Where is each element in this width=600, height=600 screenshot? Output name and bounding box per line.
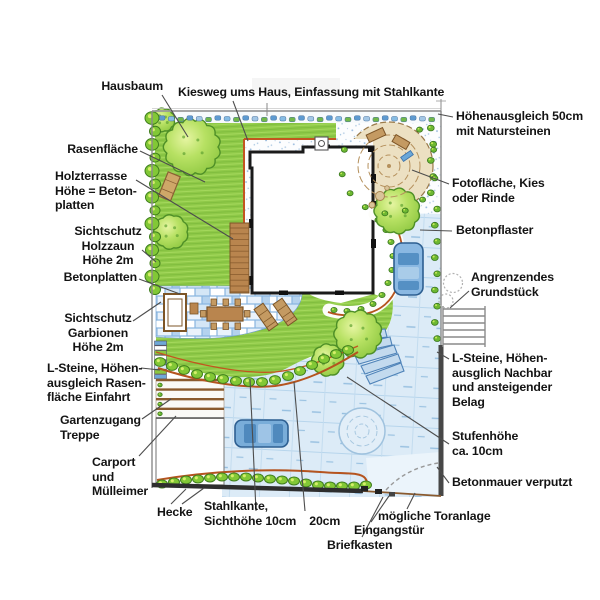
mailbox (361, 486, 368, 492)
turning-circle (339, 408, 385, 454)
gravel-stone (317, 117, 323, 122)
house-door-mark (335, 291, 344, 296)
gravel-stone (410, 116, 416, 121)
hedge-bush (270, 376, 281, 385)
leader-line-hecke (171, 489, 186, 504)
hedge-bush (205, 474, 216, 482)
gravel-stone (336, 117, 342, 122)
hedge-bush (295, 367, 306, 376)
gravel-stone (252, 117, 258, 122)
gravel-stone (308, 117, 314, 122)
hedge-bush (277, 476, 288, 484)
gravel-stone (243, 116, 249, 121)
entrance-door-mark (375, 489, 382, 494)
gravel-stone (401, 117, 407, 122)
hedge-bush (181, 476, 192, 484)
stone (376, 192, 385, 201)
hedge-bush (150, 179, 161, 189)
chair (201, 311, 207, 318)
gravel-stone (299, 116, 305, 121)
hedge-bush (150, 126, 161, 136)
gravel-stone (382, 116, 388, 121)
hedge-bush (217, 473, 228, 481)
hedge-bush (179, 366, 190, 375)
hedge-bush (283, 372, 294, 381)
chair (245, 311, 251, 318)
hedge-bush (205, 373, 216, 382)
gravel-stone (206, 117, 212, 122)
stone (369, 202, 375, 208)
garden-plan-drawing (0, 0, 600, 600)
tree-icon (154, 215, 188, 250)
chair (235, 323, 241, 330)
gravel-stone (233, 117, 239, 122)
garden-step (156, 409, 224, 419)
garden-step (156, 399, 224, 409)
gate-mark (389, 492, 395, 497)
gravel-stone (159, 116, 165, 121)
chair (223, 323, 229, 330)
gravel-stone (196, 117, 202, 122)
leader-line-briefkasten (362, 497, 383, 537)
sketched-tree (444, 274, 463, 293)
gravel-stone (280, 117, 286, 122)
gravel-stone (392, 117, 398, 122)
gravel-stone (289, 117, 295, 122)
dining-table (207, 307, 243, 321)
gravel-stone (261, 117, 267, 122)
l-stone (155, 375, 167, 379)
hedge-bush (229, 473, 240, 481)
gravel-stone (364, 117, 370, 122)
utility-box (315, 137, 328, 150)
chair (211, 299, 217, 306)
gravel-stone (354, 116, 360, 121)
garden-step (156, 390, 224, 400)
garden-plan-page: HausbaumKiesweg ums Haus, Einfassung mit… (0, 0, 600, 600)
gravel-stone (224, 117, 230, 122)
house-door-mark (279, 291, 288, 296)
house-door-mark (249, 219, 253, 228)
house-door-mark (249, 276, 253, 285)
house (250, 147, 373, 293)
leader-line-eingangstuer (371, 496, 389, 522)
gravel-stone (271, 116, 277, 121)
hedge-bush (289, 477, 300, 485)
house-door-mark (368, 147, 374, 152)
gravel-stone (373, 117, 379, 122)
hedge-bush (241, 473, 252, 481)
hedge-bush (155, 358, 166, 367)
car-parked (394, 243, 423, 295)
hedge-bush (150, 232, 161, 242)
car-driveway (235, 420, 288, 447)
gravel-stone (429, 117, 435, 122)
leader-line-angrenzendes-grundstueck (450, 291, 469, 308)
hedge-bush (319, 355, 330, 364)
gravel-stone (168, 117, 174, 122)
gravel-stone (187, 116, 193, 121)
l-stone (155, 346, 167, 350)
chair (223, 299, 229, 306)
gravel-stone (326, 116, 332, 121)
gravel-stone (419, 117, 425, 122)
hedge-bush (193, 475, 204, 483)
hedge-bush (167, 362, 178, 371)
hedge-bush (257, 378, 268, 387)
hedge-bush (343, 346, 354, 355)
chair (235, 299, 241, 306)
hedge-bush (307, 361, 318, 370)
hedge-bush (192, 370, 203, 379)
hedge-bush (331, 350, 342, 359)
hedge-bush (244, 378, 255, 387)
hedge-bush (265, 475, 276, 483)
gravel-stone (345, 117, 351, 122)
gabion-bench (164, 294, 186, 331)
house-door-mark (371, 239, 376, 248)
l-stone (155, 341, 167, 345)
chair (211, 323, 217, 330)
hedge-bush (218, 375, 229, 384)
hedge-bush (231, 377, 242, 386)
gravel-stone (215, 116, 221, 121)
